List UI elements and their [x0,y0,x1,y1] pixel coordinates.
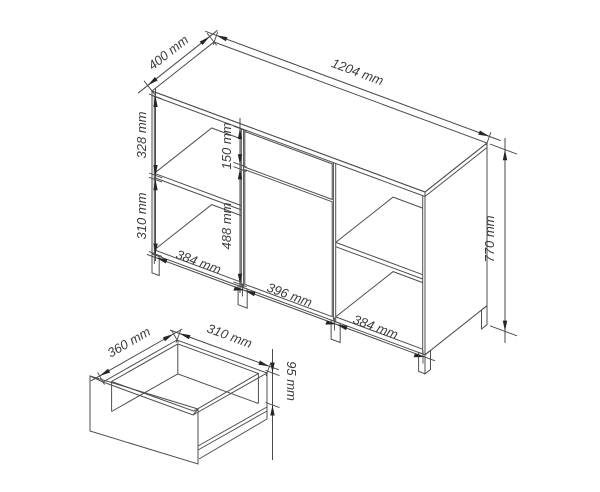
diagram-svg: 400 mm 1204 mm 770 mm 328 mm 310 mm [0,0,600,492]
drawer-width-label: 310 mm [205,321,254,351]
drawer-drawing [90,340,267,464]
cabinet-bottom-left-label: 384 mm [174,247,223,277]
cabinet-drawer-front-label: 150 mm [219,122,234,169]
cabinet-width-label: 1204 mm [330,55,386,88]
cabinet-depth-label: 400 mm [145,32,191,73]
cabinet-left-lower-label: 310 mm [134,192,149,239]
drawer-dimensions: 360 mm 310 mm 95 mm [91,321,299,460]
drawer-height-label: 95 mm [284,361,299,401]
cabinet-drawing [152,42,487,374]
cabinet-height-label: 770 mm [482,215,497,262]
drawer-depth-label: 360 mm [105,324,153,361]
cabinet-bottom-middle-label: 396 mm [265,280,314,310]
cabinet-door-height-label: 488 mm [219,202,234,249]
cabinet-bottom-right-label: 384 mm [351,312,400,342]
cabinet-left-upper-label: 328 mm [134,111,149,158]
furniture-dimension-diagram: 400 mm 1204 mm 770 mm 328 mm 310 mm [0,0,600,492]
